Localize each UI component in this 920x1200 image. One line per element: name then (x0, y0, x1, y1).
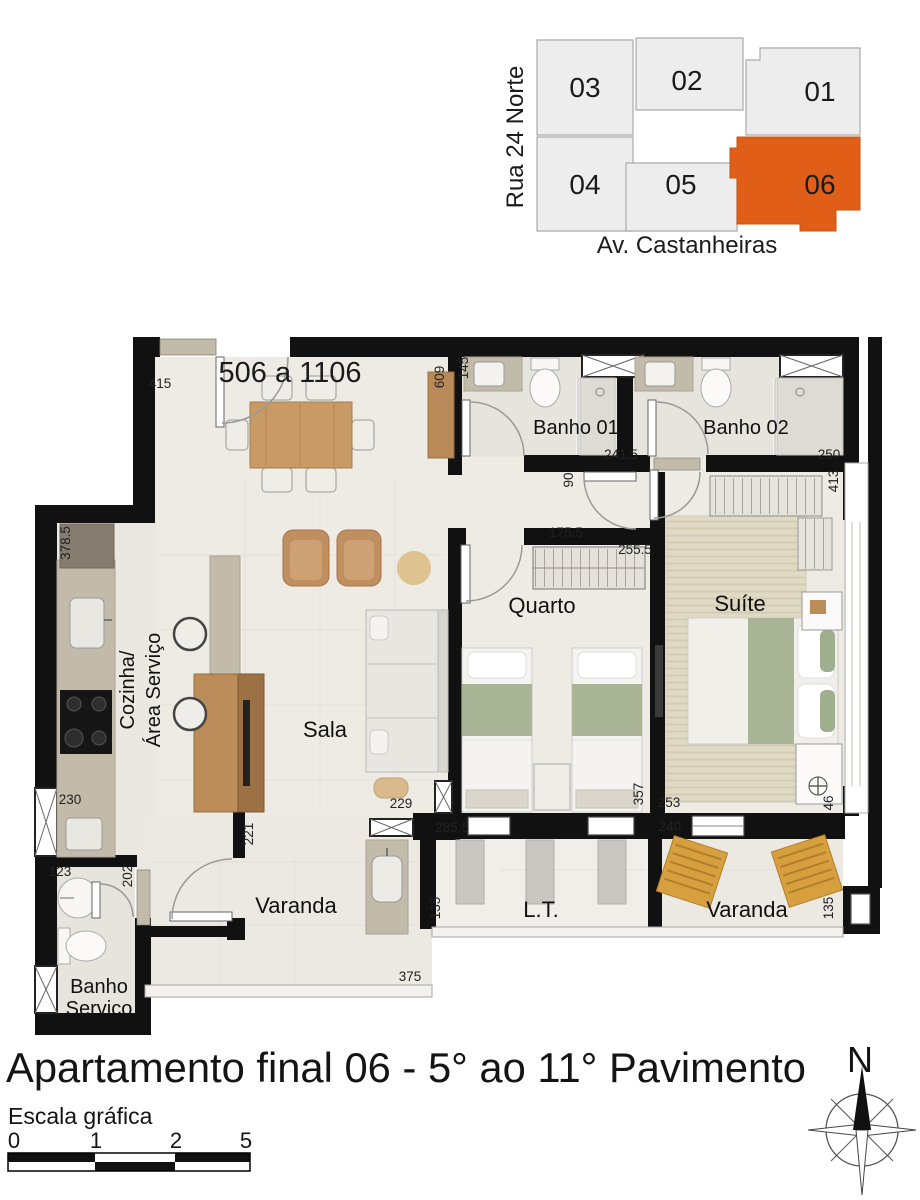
dim-lt-side: 135 (428, 897, 443, 920)
room-label-banho2: Banho 02 (703, 417, 789, 439)
suite-furniture (666, 476, 842, 804)
floorplan-page: 03 02 01 04 05 06 Rua 24 Norte Av. Casta… (0, 0, 920, 1200)
key-unit-05-label: 05 (665, 169, 696, 200)
island-counter (210, 556, 240, 674)
window-suite-side (845, 463, 868, 813)
page-title: Apartamento final 06 - 5° ao 11° Pavimen… (6, 1044, 806, 1091)
dim-banho1-width: 241.5 (604, 447, 638, 462)
street-label-left: Rua 24 Norte (502, 66, 529, 209)
dim-sala-opening: 229 (390, 796, 413, 811)
room-label-quarto: Quarto (508, 593, 575, 618)
compass-icon: N (808, 1039, 916, 1195)
scale-tick-2: 2 (170, 1128, 182, 1153)
island-cabinet (194, 674, 238, 812)
room-label-varanda-right: Varanda (706, 897, 788, 922)
suite-door-threshold (654, 458, 700, 470)
dim-varanda-right-width: 240 (659, 819, 682, 834)
kitchen-sink (70, 598, 104, 648)
dim-banho2-width: 250 (818, 447, 841, 462)
dim-kitchen-pass: 230 (59, 792, 82, 807)
room-label-suite: Suíte (714, 591, 765, 616)
key-unit-04-label: 04 (569, 169, 600, 200)
varanda-counter (366, 840, 408, 934)
shaft-banho2 (780, 355, 843, 377)
room-label-cozinha-2: Área Serviço (142, 633, 165, 748)
tv-panel (655, 645, 663, 717)
stool-2 (174, 698, 206, 730)
nightstand (534, 764, 570, 810)
dim-quarto-depth: 357 (631, 783, 646, 806)
window-banho-servico (35, 966, 57, 1013)
suite-desk (802, 592, 842, 630)
key-unit-06-label: 06 (804, 169, 835, 200)
dim-varanda-right-side: 135 (821, 897, 836, 920)
room-label-servico-1: Banho (70, 976, 128, 998)
dim-lt-width: 285.5 (435, 820, 469, 835)
key-plan: 03 02 01 04 05 06 Rua 24 Norte Av. Casta… (502, 38, 860, 259)
dim-suite-side: 413 (826, 470, 841, 493)
scale-tick-1: 1 (90, 1128, 102, 1153)
sofa (366, 610, 448, 772)
dim-kitchen-side: 378.5 (58, 526, 73, 560)
lt-equipment (456, 840, 626, 904)
dim-sideboard: 609 (432, 366, 447, 389)
dim-suite-bottom: 253 (658, 795, 681, 810)
window-varanda-right (851, 894, 870, 924)
stool-1 (174, 618, 206, 650)
dim-quarto-width: 255.5 (618, 542, 652, 557)
scale-bar: Escala gráfica 0 1 2 5 (8, 1103, 252, 1171)
shaft-sala-v (435, 781, 452, 813)
plan-canvas: 03 02 01 04 05 06 Rua 24 Norte Av. Casta… (0, 0, 920, 1200)
corridor-finish (137, 870, 150, 925)
room-label-banho1: Banho 01 (533, 417, 619, 439)
street-label-bottom: Av. Castanheiras (597, 232, 778, 259)
bed-double (688, 618, 838, 744)
laundry-tank (66, 818, 102, 850)
dim-entry: 415 (149, 376, 172, 391)
entry-window-sill (160, 339, 216, 355)
room-label-varanda-left: Varanda (255, 893, 337, 918)
tv (243, 700, 250, 786)
key-unit-02-label: 02 (671, 65, 702, 96)
pouf (374, 778, 408, 798)
dim-servico-top: 123 (49, 864, 72, 879)
key-unit-03-label: 03 (569, 72, 600, 103)
room-label-sala: Sala (303, 717, 348, 742)
room-label-cozinha-1: Cozinha/ (117, 650, 139, 729)
dim-quarto-wall: 175.5 (549, 525, 583, 540)
window-laundry (35, 788, 57, 856)
room-label-lt: L.T. (523, 897, 558, 922)
parapet-varanda-left (145, 985, 432, 997)
dim-suite-corner: 46 (821, 795, 836, 810)
key-unit-01-label: 01 (804, 76, 835, 107)
stove (60, 690, 112, 754)
key-unit-01 (746, 48, 860, 135)
scale-tick-5: 5 (240, 1128, 252, 1153)
parapet-bottom (432, 927, 843, 937)
dim-hall-width: 90 (561, 472, 576, 487)
dim-banho1-recess: 145 (456, 357, 471, 380)
unit-range-label: 506 a 1106 (219, 357, 362, 389)
dim-servico-side: 202 (120, 865, 135, 888)
bed-single-1 (462, 648, 532, 812)
scale-label: Escala gráfica (8, 1103, 153, 1129)
key-unit-06-highlighted (730, 137, 860, 231)
window-quarto-1 (468, 817, 510, 835)
compass-n-label: N (847, 1039, 873, 1080)
dim-varanda-left-width: 375 (399, 969, 422, 984)
window-quarto-2 (588, 817, 634, 835)
dim-sala-wall: 221 (241, 823, 256, 846)
floor-plan: 506 a 1106 Banho 01 Banho 02 Quarto Suít… (35, 337, 882, 1035)
side-table (397, 551, 431, 585)
shaft-sala-h (370, 819, 413, 836)
scale-tick-0: 0 (8, 1128, 20, 1153)
tv-rack (238, 674, 264, 812)
room-label-servico-2: Serviço (66, 998, 133, 1020)
suite-bench (796, 744, 842, 804)
